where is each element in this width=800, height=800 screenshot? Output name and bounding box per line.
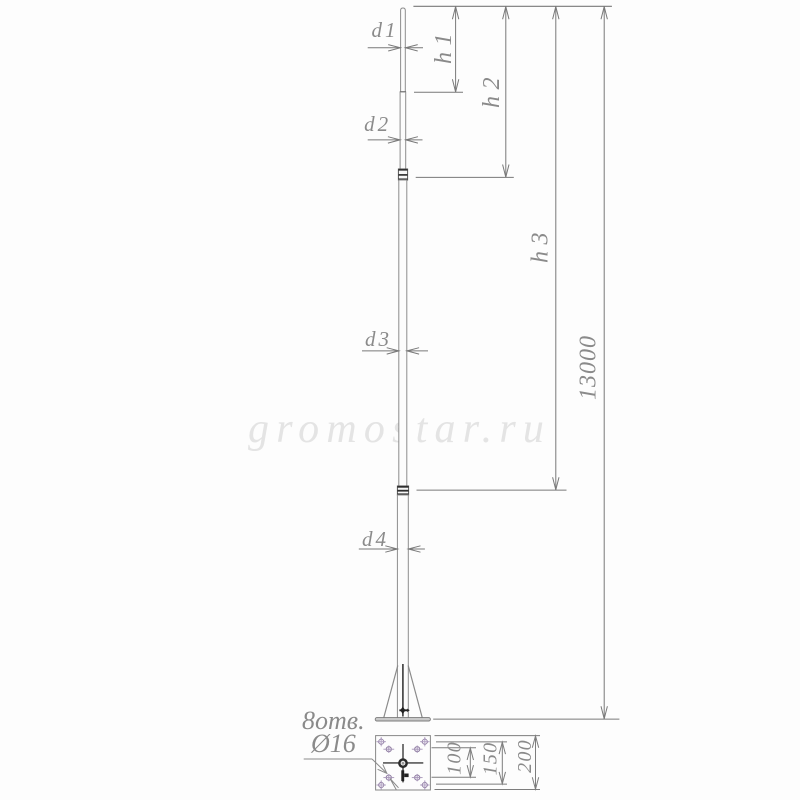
svg-text:13000: 13000 bbox=[576, 335, 602, 400]
svg-text:Ø16: Ø16 bbox=[310, 729, 356, 758]
svg-text:d3: d3 bbox=[365, 327, 392, 351]
svg-text:d1: d1 bbox=[372, 18, 399, 42]
svg-text:150: 150 bbox=[480, 742, 502, 776]
svg-text:d2: d2 bbox=[364, 112, 391, 136]
svg-text:h1: h1 bbox=[431, 27, 457, 64]
svg-text:d4: d4 bbox=[362, 527, 389, 551]
svg-text:h3: h3 bbox=[528, 226, 554, 263]
svg-text:h2: h2 bbox=[479, 71, 505, 108]
svg-text:200: 200 bbox=[514, 739, 536, 773]
svg-text:100: 100 bbox=[444, 741, 466, 775]
